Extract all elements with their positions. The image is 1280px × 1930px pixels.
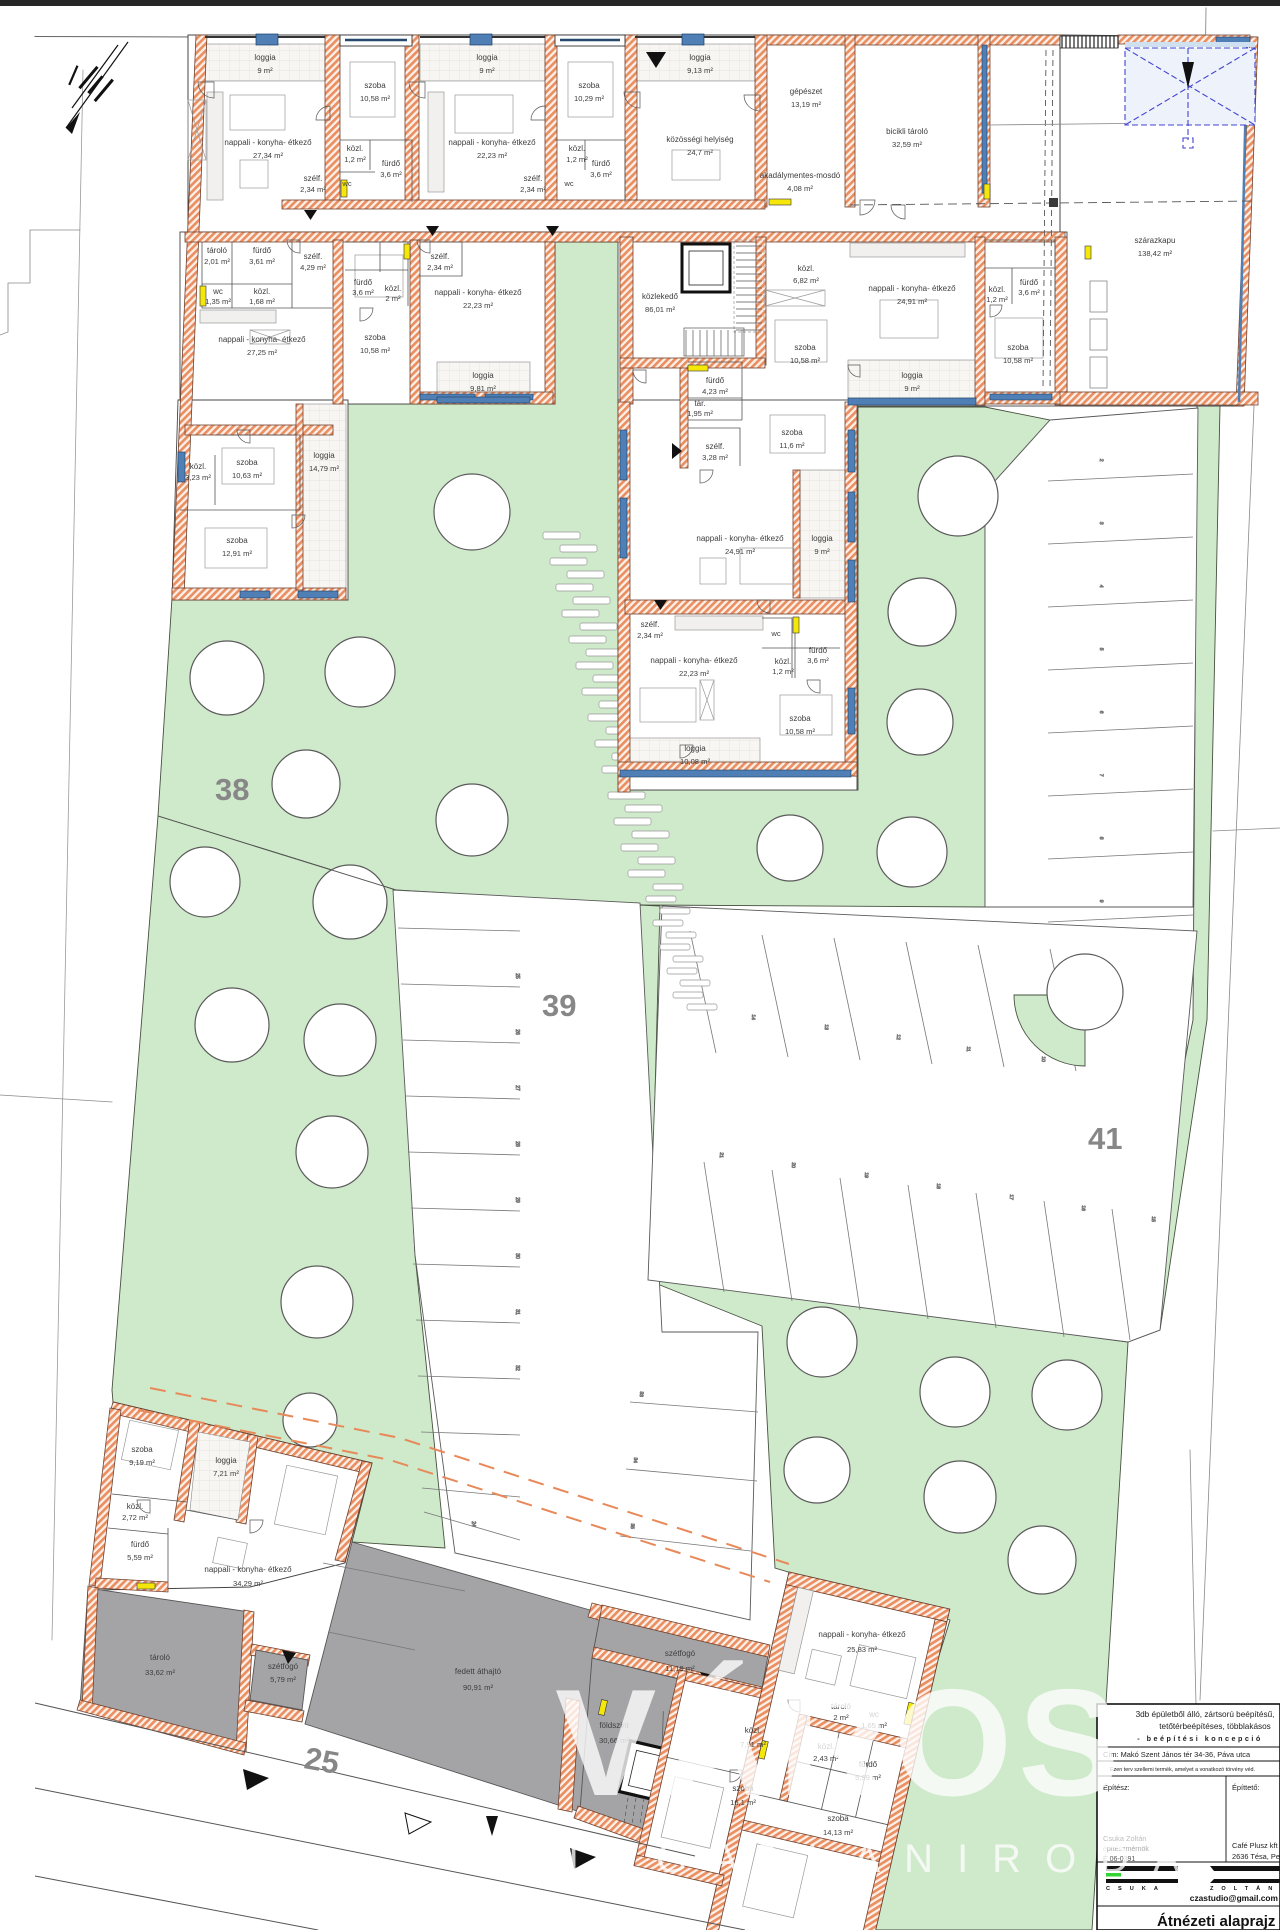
svg-text:2 m²: 2 m² <box>385 294 401 303</box>
svg-text:6,82 m²: 6,82 m² <box>793 276 819 285</box>
svg-text:25: 25 <box>514 973 520 979</box>
svg-text:9 m²: 9 m² <box>479 66 495 75</box>
svg-text:32: 32 <box>514 1365 520 1371</box>
svg-text:14,79 m²: 14,79 m² <box>309 464 339 473</box>
svg-text:10,58 m²: 10,58 m² <box>360 346 390 355</box>
svg-text:Építtető:: Építtető: <box>1232 1783 1260 1792</box>
svg-text:13,19 m²: 13,19 m² <box>791 100 821 109</box>
svg-text:18: 18 <box>935 1183 941 1189</box>
svg-text:wc: wc <box>563 179 573 188</box>
svg-text:14: 14 <box>750 1014 756 1020</box>
svg-text:fürdő: fürdő <box>809 646 828 655</box>
svg-text:14,13 m²: 14,13 m² <box>823 1828 853 1837</box>
svg-text:10,63 m²: 10,63 m² <box>232 471 262 480</box>
svg-text:33: 33 <box>638 1391 644 1397</box>
svg-text:5,79 m²: 5,79 m² <box>270 1675 296 1684</box>
svg-text:közl.: közl. <box>254 287 270 296</box>
svg-text:2636 Tésa, Pe: 2636 Tésa, Pe <box>1232 1852 1280 1861</box>
svg-text:30: 30 <box>514 1253 520 1259</box>
svg-text:közlekedő: közlekedő <box>642 292 679 301</box>
svg-text:nappali - konyha- étkező: nappali - konyha- étkező <box>818 1630 906 1639</box>
svg-text:4,29 m²: 4,29 m² <box>300 263 326 272</box>
svg-text:közl.: közl. <box>989 285 1005 294</box>
svg-text:szoba: szoba <box>236 458 258 467</box>
svg-text:közl.: közl. <box>127 1502 143 1511</box>
svg-text:27: 27 <box>514 1085 520 1091</box>
svg-text:3db épületből álló, zártsorú b: 3db épületből álló, zártsorú beépítésű, <box>1136 1710 1275 1719</box>
svg-text:13: 13 <box>823 1024 829 1030</box>
svg-text:gépészet: gépészet <box>790 87 823 96</box>
svg-text:közl.: közl. <box>385 284 401 293</box>
svg-text:26: 26 <box>514 1029 520 1035</box>
svg-text:24: 24 <box>470 1521 476 1527</box>
svg-text:szoba: szoba <box>578 81 600 90</box>
svg-text:nappali - konyha- étkező: nappali - konyha- étkező <box>448 138 536 147</box>
svg-text:41: 41 <box>1088 1121 1122 1156</box>
svg-text:szárazkapu: szárazkapu <box>1135 236 1176 245</box>
svg-text:akadálymentes-mosdó: akadálymentes-mosdó <box>760 171 841 180</box>
svg-text:wc: wc <box>770 629 780 638</box>
svg-text:nappali - konyha- étkező: nappali - konyha- étkező <box>868 284 956 293</box>
svg-text:Café Plusz kft: Café Plusz kft <box>1232 1841 1278 1850</box>
svg-text:10,58 m²: 10,58 m² <box>790 356 820 365</box>
svg-text:25: 25 <box>302 1740 342 1780</box>
svg-text:nappali - konyha- étkező: nappali - konyha- étkező <box>224 138 312 147</box>
svg-text:szoba: szoba <box>1007 343 1029 352</box>
svg-text:közl.: közl. <box>347 144 363 153</box>
svg-text:12,91 m²: 12,91 m² <box>222 549 252 558</box>
svg-text:1,95 m²: 1,95 m² <box>687 409 713 418</box>
svg-text:2,72 m²: 2,72 m² <box>122 1513 148 1522</box>
svg-text:9 m²: 9 m² <box>257 66 273 75</box>
svg-text:fedett áthajtó: fedett áthajtó <box>455 1667 502 1676</box>
svg-text:19: 19 <box>863 1172 869 1178</box>
svg-text:3,61 m²: 3,61 m² <box>249 257 275 266</box>
svg-text:fürdő: fürdő <box>253 246 272 255</box>
svg-text:szélf.: szélf. <box>304 252 323 261</box>
svg-text:nappali - konyha- étkező: nappali - konyha- étkező <box>650 656 738 665</box>
svg-text:39: 39 <box>542 988 576 1023</box>
svg-text:17: 17 <box>1008 1194 1014 1200</box>
svg-text:2,01 m²: 2,01 m² <box>204 257 230 266</box>
svg-text:10,29 m²: 10,29 m² <box>574 94 604 103</box>
svg-text:28: 28 <box>514 1141 520 1147</box>
svg-text:10,58 m²: 10,58 m² <box>785 727 815 736</box>
svg-text:fürdő: fürdő <box>131 1540 150 1549</box>
svg-text:loggia: loggia <box>689 53 711 62</box>
svg-text:szélf.: szélf. <box>431 252 450 261</box>
svg-text:24,91 m²: 24,91 m² <box>897 297 927 306</box>
svg-text:9,13 m²: 9,13 m² <box>687 66 713 75</box>
svg-text:bicikli tároló: bicikli tároló <box>886 127 928 136</box>
svg-text:közösségi helyiség: közösségi helyiség <box>666 135 733 144</box>
svg-text:3,6 m²: 3,6 m² <box>590 170 612 179</box>
svg-text:loggia: loggia <box>476 53 498 62</box>
svg-text:ZOLTÁN: ZOLTÁN <box>1210 1885 1280 1892</box>
svg-text:szoba: szoba <box>364 81 386 90</box>
svg-text:szélf.: szélf. <box>641 620 660 629</box>
svg-text:fürdő: fürdő <box>354 278 373 287</box>
svg-text:4,23 m²: 4,23 m² <box>702 387 728 396</box>
svg-text:10,58 m²: 10,58 m² <box>1003 356 1033 365</box>
svg-text:10: 10 <box>1040 1056 1046 1062</box>
svg-text:fürdő: fürdő <box>592 159 611 168</box>
svg-text:20: 20 <box>790 1162 796 1168</box>
svg-text:3,28 m²: 3,28 m² <box>702 453 728 462</box>
svg-text:fürdő: fürdő <box>1020 278 1039 287</box>
svg-text:2,34 m²: 2,34 m² <box>300 185 326 194</box>
svg-text:11,6 m²: 11,6 m² <box>779 441 805 450</box>
svg-text:loggia: loggia <box>901 371 923 380</box>
svg-text:5,59 m²: 5,59 m² <box>127 1553 153 1562</box>
svg-text:21: 21 <box>718 1152 724 1158</box>
svg-text:szélf.: szélf. <box>304 174 323 183</box>
svg-text:90,91 m²: 90,91 m² <box>463 1683 493 1692</box>
svg-text:4,08 m²: 4,08 m² <box>787 184 813 193</box>
svg-text:szoba: szoba <box>794 343 816 352</box>
svg-text:10,08 m²: 10,08 m² <box>680 757 710 766</box>
svg-text:86,01 m²: 86,01 m² <box>645 305 675 314</box>
svg-text:9 m²: 9 m² <box>814 547 830 556</box>
svg-text:VÁROS: VÁROS <box>555 1658 1126 1828</box>
svg-text:1,2 m²: 1,2 m² <box>566 155 588 164</box>
svg-text:32,59 m²: 32,59 m² <box>892 140 922 149</box>
svg-text:közl.: közl. <box>798 264 814 273</box>
svg-text:27,25 m²: 27,25 m² <box>247 348 277 357</box>
svg-text:35: 35 <box>629 1523 635 1529</box>
svg-text:3,23 m²: 3,23 m² <box>185 473 211 482</box>
svg-text:1,2 m²: 1,2 m² <box>344 155 366 164</box>
svg-text:tároló: tároló <box>207 246 228 255</box>
svg-text:tár.: tár. <box>694 399 705 408</box>
svg-text:szélf.: szélf. <box>524 174 543 183</box>
svg-text:9 m²: 9 m² <box>904 384 920 393</box>
svg-text:szétfogó: szétfogó <box>665 1649 696 1658</box>
svg-text:2,34 m²: 2,34 m² <box>520 185 546 194</box>
svg-text:nappali - konyha- étkező: nappali - konyha- étkező <box>434 288 522 297</box>
svg-text:22,23 m²: 22,23 m² <box>463 301 493 310</box>
svg-text:közl.: közl. <box>775 657 791 666</box>
svg-text:15: 15 <box>1150 1216 1156 1222</box>
svg-text:nappali - konyha- étkező: nappali - konyha- étkező <box>204 1565 292 1574</box>
svg-text:24,91 m²: 24,91 m² <box>725 547 755 556</box>
svg-text:29: 29 <box>514 1197 520 1203</box>
svg-text:fürdő: fürdő <box>706 376 725 385</box>
svg-text:27,34 m²: 27,34 m² <box>253 151 283 160</box>
svg-text:közl.: közl. <box>190 462 206 471</box>
svg-text:2,34 m²: 2,34 m² <box>427 263 453 272</box>
svg-text:loggia: loggia <box>684 744 706 753</box>
svg-text:3,6 m²: 3,6 m² <box>352 288 374 297</box>
svg-text:38: 38 <box>215 772 249 807</box>
svg-text:nappali - konyha- étkező: nappali - konyha- étkező <box>218 335 306 344</box>
svg-text:16: 16 <box>1080 1205 1086 1211</box>
svg-text:22,23 m²: 22,23 m² <box>679 669 709 678</box>
svg-text:szoba: szoba <box>364 333 386 342</box>
svg-text:22,23 m²: 22,23 m² <box>477 151 507 160</box>
svg-text:szoba: szoba <box>226 536 248 545</box>
svg-text:loggia: loggia <box>215 1456 237 1465</box>
svg-text:CSUKA: CSUKA <box>1106 1886 1166 1892</box>
svg-text:loggia: loggia <box>472 371 494 380</box>
svg-text:szétfogó: szétfogó <box>268 1662 299 1671</box>
svg-text:wc: wc <box>212 287 223 296</box>
svg-text:33,62 m²: 33,62 m² <box>145 1668 175 1677</box>
svg-text:tetőtérbeépítéses, többlakásos: tetőtérbeépítéses, többlakásos <box>1159 1722 1271 1731</box>
svg-text:7,21 m²: 7,21 m² <box>213 1469 239 1478</box>
svg-text:9,19 m²: 9,19 m² <box>129 1458 155 1467</box>
svg-text:34,29 m²: 34,29 m² <box>233 1579 263 1588</box>
svg-text:fürdő: fürdő <box>382 159 401 168</box>
svg-text:tároló: tároló <box>150 1653 171 1662</box>
svg-text:loggia: loggia <box>811 534 833 543</box>
svg-text:czastudio@gmail.com: czastudio@gmail.com <box>1190 1893 1278 1903</box>
svg-text:1,35 m²: 1,35 m² <box>205 297 231 306</box>
svg-text:nappali - konyha- étkező: nappali - konyha- étkező <box>696 534 784 543</box>
svg-text:1,2 m²: 1,2 m² <box>986 295 1008 304</box>
svg-text:szélf.: szélf. <box>706 442 725 451</box>
svg-text:2,34 m²: 2,34 m² <box>637 631 663 640</box>
svg-text:11: 11 <box>965 1046 971 1052</box>
svg-text:Ezen terv szellemi termék, ame: Ezen terv szellemi termék, amelyet a von… <box>1110 1767 1255 1773</box>
svg-text:szoba: szoba <box>781 428 803 437</box>
svg-text:138,42 m²: 138,42 m² <box>1138 249 1173 258</box>
svg-text:wc: wc <box>341 179 351 188</box>
svg-text:9,81 m²: 9,81 m² <box>470 384 496 393</box>
svg-text:31: 31 <box>514 1309 520 1315</box>
svg-text:25,83 m²: 25,83 m² <box>847 1645 877 1654</box>
svg-text:3,6 m²: 3,6 m² <box>807 656 829 665</box>
svg-text:1,2 m²: 1,2 m² <box>772 667 794 676</box>
svg-text:INGATLANIRODA: INGATLANIRODA <box>568 1837 1204 1881</box>
svg-text:loggia: loggia <box>254 53 276 62</box>
svg-text:közl.: közl. <box>569 144 585 153</box>
svg-text:10,58 m²: 10,58 m² <box>360 94 390 103</box>
svg-text:szoba: szoba <box>789 714 811 723</box>
svg-text:34: 34 <box>632 1457 638 1463</box>
svg-text:- beépítési koncepció: - beépítési koncepció <box>1137 1734 1263 1743</box>
svg-text:Átnézeti alaprajz: Átnézeti alaprajz <box>1157 1913 1275 1930</box>
svg-text:12: 12 <box>895 1034 901 1040</box>
svg-text:loggia: loggia <box>313 451 335 460</box>
svg-text:3,6 m²: 3,6 m² <box>1018 288 1040 297</box>
svg-text:24,7 m²: 24,7 m² <box>687 148 713 157</box>
svg-text:szoba: szoba <box>131 1445 153 1454</box>
svg-text:1,68 m²: 1,68 m² <box>249 297 275 306</box>
svg-text:3,6 m²: 3,6 m² <box>380 170 402 179</box>
